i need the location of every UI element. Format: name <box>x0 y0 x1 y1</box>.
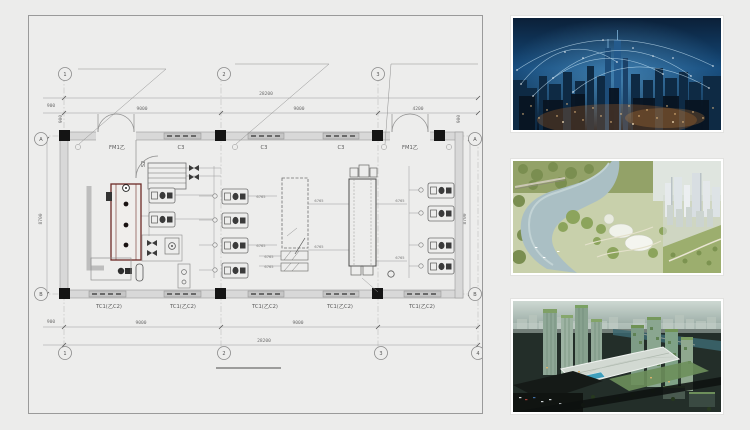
pipe-label: 6765 <box>264 255 273 259</box>
dim-bot-seg1: 9000 <box>135 320 146 326</box>
pump-column-right <box>419 183 454 274</box>
grid-bubble: 1 <box>59 68 72 81</box>
dim-wall-small-right: 900 <box>456 115 462 124</box>
buffer-tank <box>295 165 394 277</box>
dim-top-seg1: 9000 <box>136 106 147 112</box>
grid-bubble: A <box>469 133 482 146</box>
grid-bubble-label: 3 <box>379 351 382 357</box>
grid-bubble-label: 2 <box>222 72 225 78</box>
grid-bubble: 4 <box>472 347 483 360</box>
grid-bubble: 2 <box>218 68 231 81</box>
right-wall <box>455 132 463 298</box>
pipe-label: 6765 <box>314 245 323 249</box>
grid-bubble: 2 <box>218 347 231 360</box>
dim-side-small: 900 <box>47 103 56 109</box>
bottom-window-label: TC1(乙C2) <box>408 303 435 310</box>
grid-bubble-label: 1 <box>63 72 66 78</box>
double-door-right <box>392 114 428 132</box>
door-opening-right <box>390 131 430 141</box>
left-wall <box>60 132 68 298</box>
dim-bot-small: 900 <box>47 319 56 325</box>
plate-heat-exchanger <box>148 163 199 189</box>
grid-bubble-label: 1 <box>63 351 66 357</box>
equipment <box>91 163 454 288</box>
bottom-window-label: TC1(乙C2) <box>95 303 122 310</box>
grid-bubble: B <box>469 288 482 301</box>
door-label: FM1乙 <box>109 144 125 151</box>
control-cabinet <box>91 258 190 288</box>
pipe-label: 6765 <box>264 265 273 269</box>
city-glow <box>625 108 705 128</box>
bottom-window-label: TC1(乙C2) <box>326 303 353 310</box>
dim-bot-seg2: 9000 <box>292 320 303 326</box>
window-label: C3 <box>178 145 185 151</box>
dim-wall-small-left: 900 <box>58 115 64 124</box>
photo-riverfront-masterplan <box>510 158 724 276</box>
grid-bubble-label: B <box>473 292 477 298</box>
grid-bubble: 3 <box>372 68 385 81</box>
dim-left-height: 8700 <box>38 213 44 224</box>
boiler-unit <box>106 184 143 281</box>
valve-manifold-skid <box>142 235 182 261</box>
bottom-window-label: TC1(乙C2) <box>169 303 196 310</box>
grid-bubble: B <box>35 288 48 301</box>
pump-group-left <box>149 188 175 227</box>
grid-bubble: A <box>35 133 48 146</box>
door-label: FM1乙 <box>402 144 418 151</box>
boiler-pump <box>118 264 143 281</box>
pipe-label: 6765 <box>395 256 404 260</box>
grid-bubble-label: 4 <box>476 351 479 357</box>
grid-bubble-label: A <box>473 137 477 143</box>
grid-bubble-label: 2 <box>222 351 225 357</box>
pump-column-mid <box>213 189 248 278</box>
top-windows <box>164 133 359 139</box>
floor-plan-drawing: 28200 9000 9000 4200 900 9000 9000 28200… <box>28 15 483 414</box>
door-opening-left <box>96 131 136 141</box>
grid-bubble: 3 <box>375 347 388 360</box>
grid-bubble-label: 3 <box>376 72 379 78</box>
photo-smart-city-night <box>510 15 724 133</box>
bottom-window-label: TC1(乙C2) <box>251 303 278 310</box>
partition-label: S2 <box>141 161 147 168</box>
photo-gallery <box>510 15 724 415</box>
pipe-label: 6765 <box>256 244 265 248</box>
dim-top-seg3: 4200 <box>412 106 423 112</box>
dim-bot-total: 28200 <box>257 338 271 344</box>
grid-bubble: 1 <box>59 347 72 360</box>
dim-top-total: 28200 <box>259 91 273 97</box>
photo-towers-complex <box>510 298 724 415</box>
grid-bubble-label: B <box>39 292 43 298</box>
dim-top-seg2: 9000 <box>293 106 304 112</box>
window-label: C3 <box>261 145 268 151</box>
pipe-label: 6765 <box>395 199 404 203</box>
plan-labels: FM1乙 FM1乙 C3 C3 C3 S2 TC1(乙C2) TC1(乙C2) … <box>95 144 435 310</box>
riverfront-masterplan-scene <box>513 161 721 273</box>
floor-plan-svg: 28200 9000 9000 4200 900 9000 9000 28200… <box>29 16 482 413</box>
pipe-label: 6765 <box>314 199 323 203</box>
smart-city-night-scene <box>513 18 721 130</box>
grid-bubble-label: A <box>39 137 43 143</box>
water-tank-dashed <box>281 178 308 271</box>
window-label: C3 <box>338 145 345 151</box>
towers-complex-scene <box>513 301 721 412</box>
pipe-label: 6765 <box>256 195 265 199</box>
